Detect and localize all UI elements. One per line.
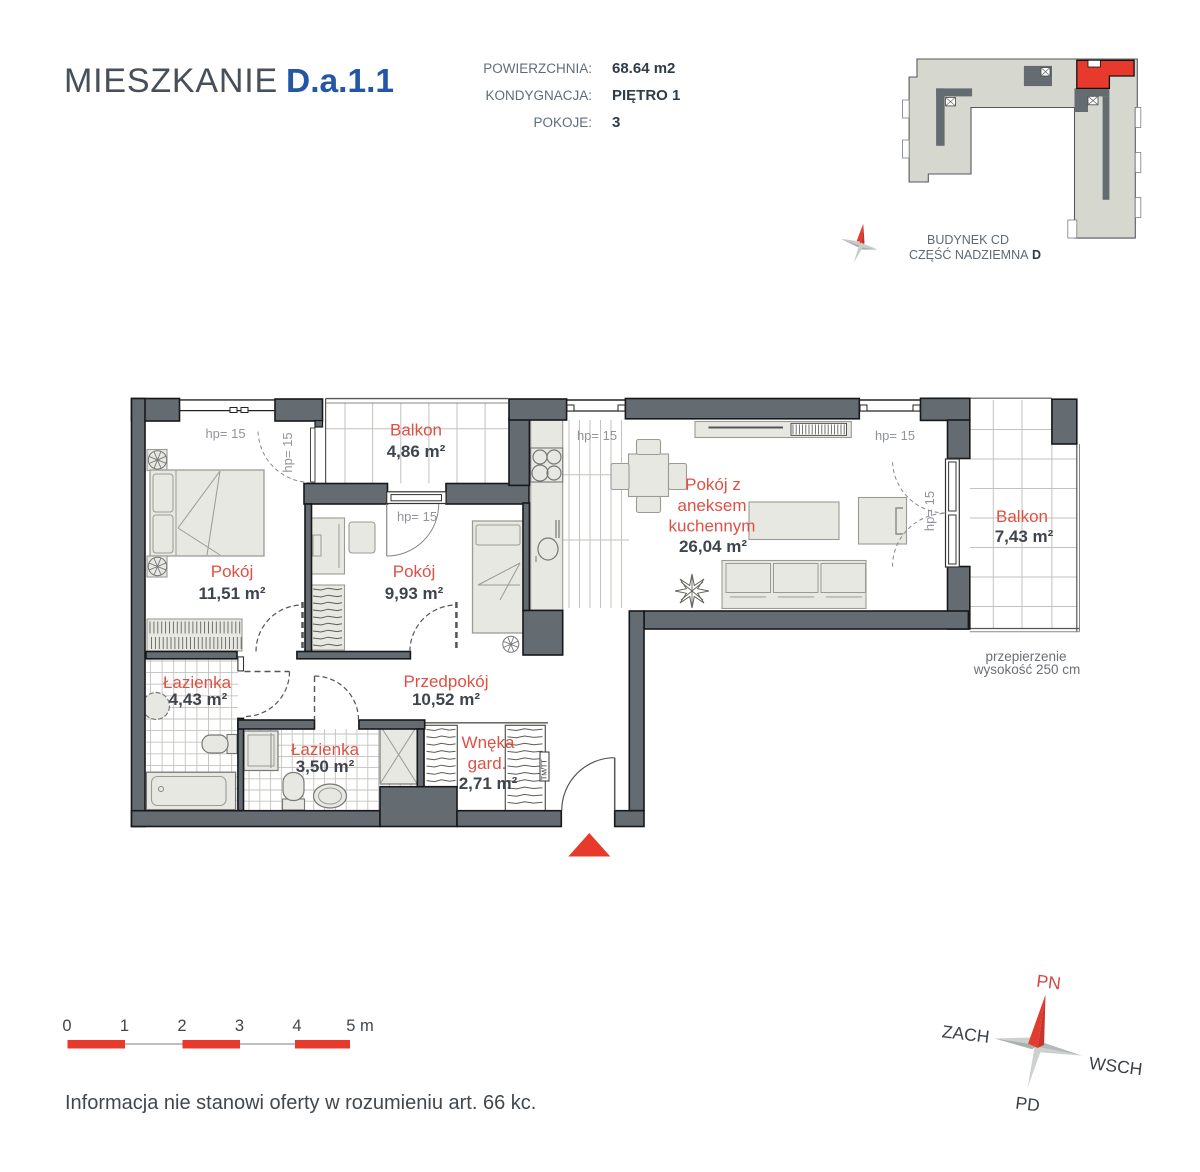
svg-text:5 m: 5 m [346, 1017, 374, 1035]
svg-text:BUDYNEK CD: BUDYNEK CD [927, 233, 1009, 247]
svg-text:PD: PD [1014, 1093, 1041, 1116]
svg-text:Pokój: Pokój [211, 562, 254, 581]
svg-text:68.64 m2: 68.64 m2 [612, 60, 675, 77]
svg-text:aneksem: aneksem [678, 496, 747, 515]
svg-text:7,43 m²: 7,43 m² [995, 527, 1054, 546]
svg-text:gard.: gard. [468, 754, 507, 773]
svg-text:Pokój: Pokój [393, 562, 436, 581]
svg-text:D.a.1.1: D.a.1.1 [286, 63, 394, 100]
svg-text:Balkon: Balkon [996, 507, 1048, 526]
svg-text:0: 0 [62, 1017, 71, 1035]
svg-text:Wnęka: Wnęka [462, 733, 515, 752]
svg-text:hp= 15: hp= 15 [397, 509, 437, 524]
svg-text:POWIERZCHNIA:: POWIERZCHNIA: [483, 61, 592, 76]
svg-text:POKOJE:: POKOJE: [533, 115, 592, 130]
svg-text:4,86 m²: 4,86 m² [387, 442, 446, 461]
svg-text:KONDYGNACJA:: KONDYGNACJA: [485, 88, 592, 103]
svg-text:PN: PN [1035, 971, 1062, 994]
svg-text:10,52 m²: 10,52 m² [412, 690, 480, 709]
svg-text:3,50 m²: 3,50 m² [296, 757, 355, 776]
svg-text:MIESZKANIE: MIESZKANIE [64, 62, 278, 100]
svg-text:11,51 m²: 11,51 m² [198, 584, 265, 603]
svg-text:3: 3 [612, 114, 620, 131]
svg-text:hp= 15: hp= 15 [875, 428, 915, 443]
svg-text:2,71 m²: 2,71 m² [459, 774, 518, 793]
svg-text:Przedpokój: Przedpokój [403, 672, 488, 691]
svg-text:kuchennym: kuchennym [669, 517, 756, 536]
svg-text:4,43 m²: 4,43 m² [169, 690, 228, 709]
svg-text:Informacja nie stanowi oferty: Informacja nie stanowi oferty w rozumien… [65, 1092, 536, 1114]
svg-text:hp= 15: hp= 15 [280, 432, 295, 472]
svg-text:9,93 m²: 9,93 m² [385, 584, 444, 603]
svg-text:Balkon: Balkon [390, 421, 442, 440]
svg-text:1: 1 [120, 1017, 129, 1035]
svg-text:wysokość 250 cm: wysokość 250 cm [973, 662, 1081, 677]
svg-text:hp= 15: hp= 15 [922, 491, 937, 531]
svg-text:26,04 m²: 26,04 m² [679, 537, 747, 556]
svg-text:2: 2 [177, 1017, 186, 1035]
svg-text:CZĘŚĆ NADZIEMNA: CZĘŚĆ NADZIEMNA [909, 247, 1029, 262]
svg-text:4: 4 [292, 1017, 301, 1035]
svg-text:Pokój z: Pokój z [685, 475, 741, 494]
svg-text:PIĘTRO 1: PIĘTRO 1 [612, 87, 680, 104]
svg-text:TM/TT: TM/TT [542, 759, 549, 780]
svg-text:3: 3 [235, 1017, 244, 1035]
svg-text:D: D [1032, 248, 1041, 262]
svg-text:hp= 15: hp= 15 [577, 428, 617, 443]
svg-text:hp= 15: hp= 15 [205, 426, 245, 441]
